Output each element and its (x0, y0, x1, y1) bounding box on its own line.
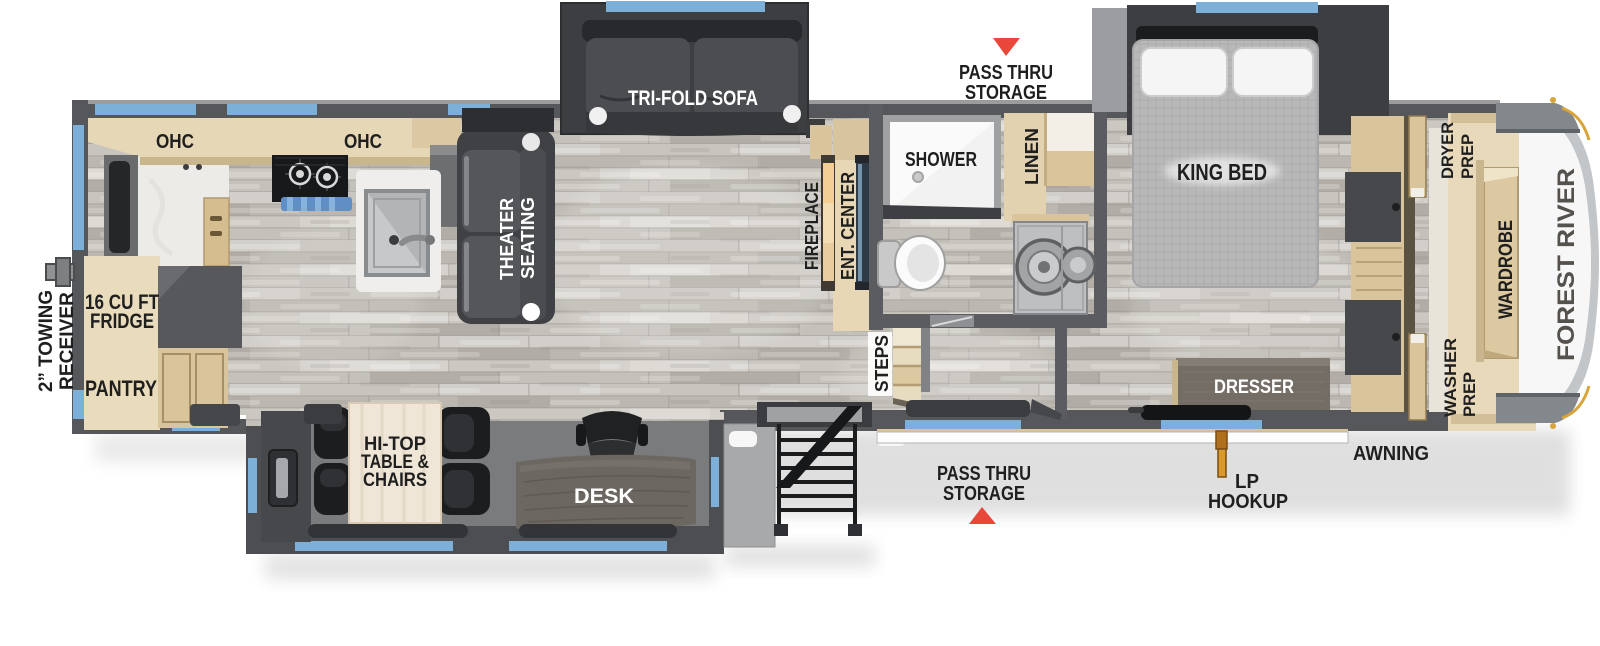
svg-text:FOREST RIVER: FOREST RIVER (1553, 168, 1580, 361)
svg-text:2” TOWING: 2” TOWING (36, 290, 57, 392)
svg-text:STEPS: STEPS (872, 335, 892, 392)
svg-text:PANTRY: PANTRY (85, 376, 157, 401)
svg-text:DRYER: DRYER (1438, 122, 1457, 179)
svg-text:STORAGE: STORAGE (943, 483, 1025, 505)
svg-text:SEATING: SEATING (518, 197, 538, 279)
svg-text:PASS THRU: PASS THRU (959, 62, 1053, 84)
svg-text:LINEN: LINEN (1022, 128, 1042, 185)
svg-text:STORAGE: STORAGE (965, 82, 1047, 104)
svg-text:LP: LP (1235, 471, 1259, 493)
svg-text:ENT. CENTER: ENT. CENTER (838, 172, 858, 280)
svg-text:PASS THRU: PASS THRU (937, 463, 1031, 485)
svg-text:WARDROBE: WARDROBE (1496, 220, 1517, 319)
svg-text:RECEIVER: RECEIVER (57, 292, 78, 390)
svg-text:HOOKUP: HOOKUP (1208, 491, 1288, 513)
svg-text:AWNING: AWNING (1353, 443, 1429, 465)
svg-text:TRI-FOLD SOFA: TRI-FOLD SOFA (628, 87, 758, 110)
svg-text:OHC: OHC (156, 131, 194, 153)
svg-text:KING BED: KING BED (1177, 159, 1267, 185)
svg-text:FRIDGE: FRIDGE (90, 310, 154, 333)
svg-text:PREP: PREP (1460, 372, 1479, 417)
svg-text:WASHER: WASHER (1441, 338, 1460, 417)
svg-text:FIREPLACE: FIREPLACE (802, 182, 822, 270)
svg-text:SHOWER: SHOWER (905, 149, 977, 171)
svg-text:THEATER: THEATER (497, 198, 517, 280)
svg-text:CHAIRS: CHAIRS (363, 470, 427, 491)
svg-text:OHC: OHC (344, 131, 382, 153)
svg-text:DESK: DESK (574, 485, 634, 508)
svg-text:DRESSER: DRESSER (1214, 377, 1294, 398)
svg-text:PREP: PREP (1458, 134, 1477, 179)
